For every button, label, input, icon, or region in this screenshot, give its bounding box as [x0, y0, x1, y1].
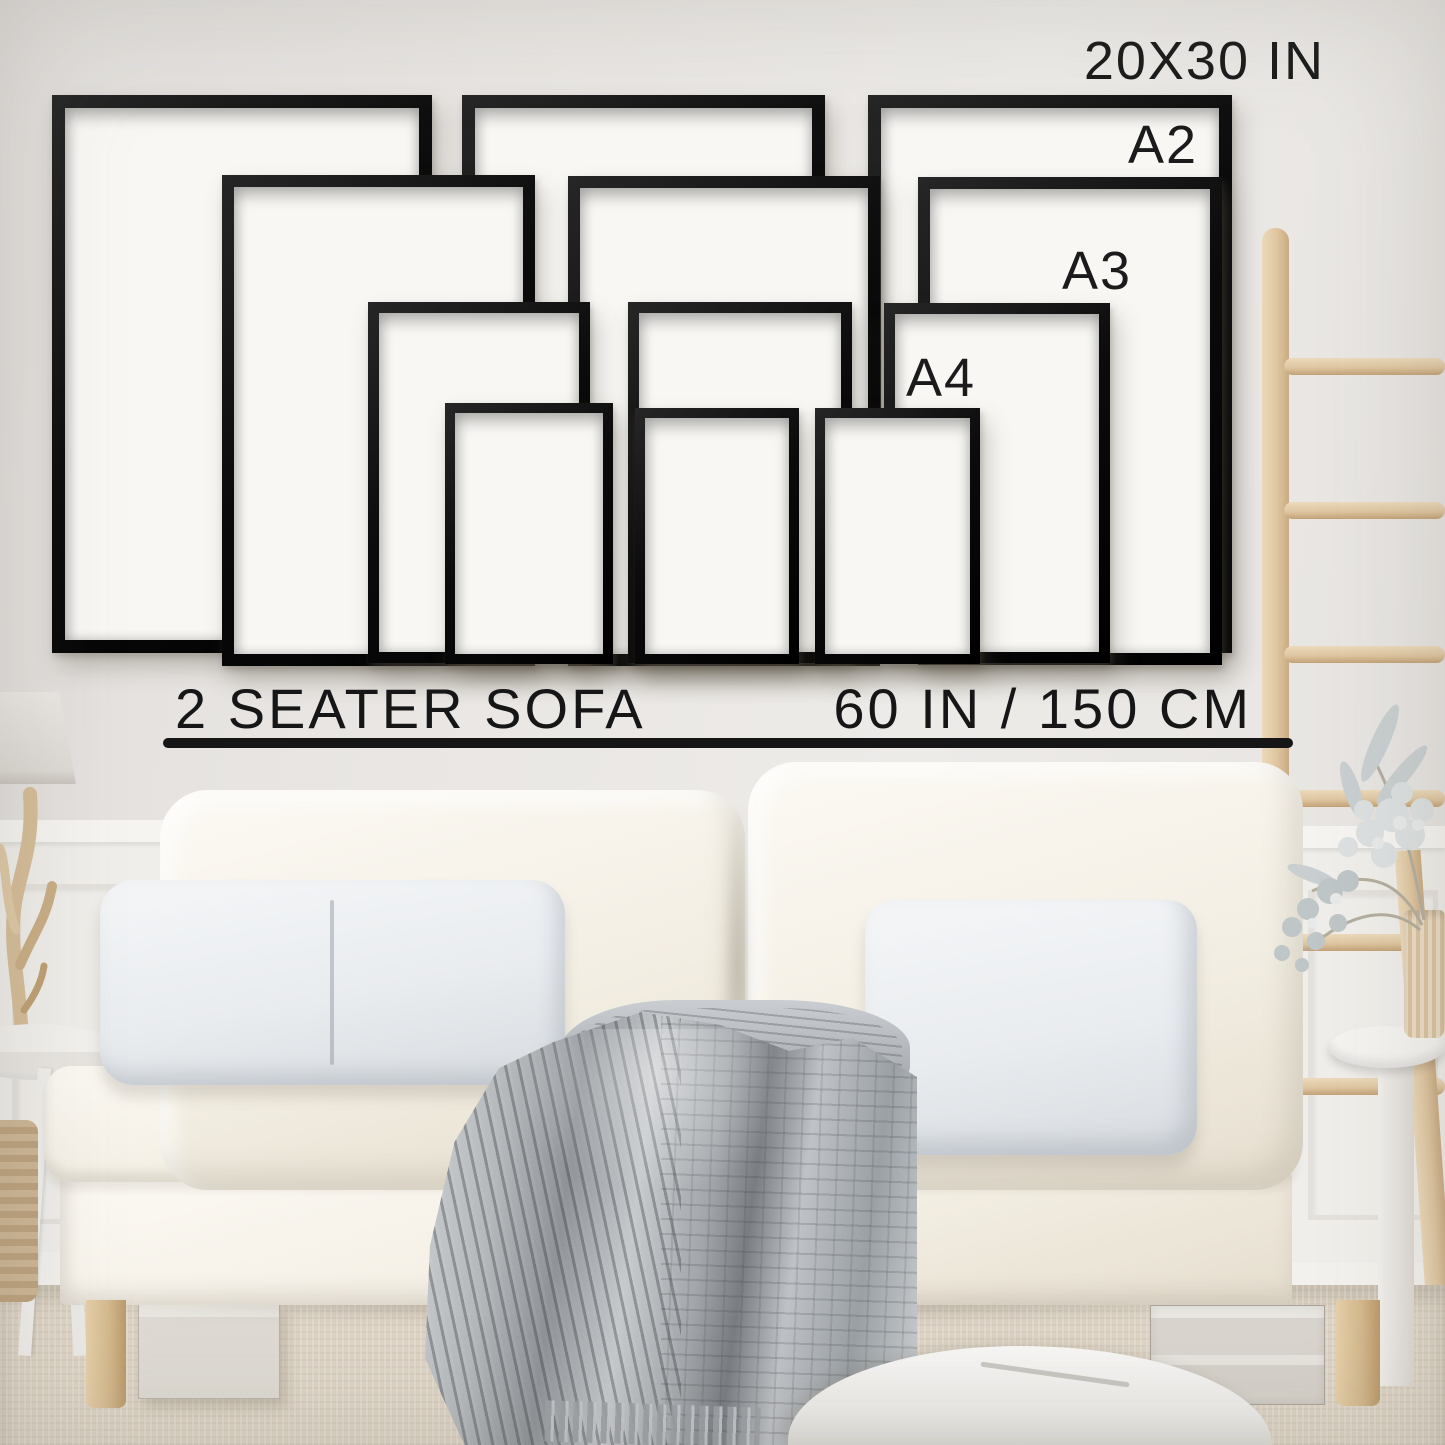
- sofa-width-label: 60 IN / 150 CM: [833, 676, 1252, 741]
- dried-plant: [1252, 695, 1445, 1025]
- blanket-fringe: [544, 1400, 760, 1445]
- frame-mat: [825, 418, 970, 654]
- measure-underline: [163, 738, 1293, 748]
- sofa-leg-right: [1336, 1300, 1380, 1406]
- ladder-rung-1: [1284, 358, 1445, 375]
- driftwood-decor: [0, 780, 85, 1050]
- sofa-type-label: 2 SEATER SOFA: [175, 676, 646, 741]
- picture-frame-a4-left: [445, 403, 613, 664]
- size-label-a2: A2: [1128, 114, 1198, 176]
- size-label-a3: A3: [1062, 240, 1132, 302]
- size-label-a4: A4: [906, 347, 976, 409]
- picture-frame-a4-right: [815, 408, 980, 664]
- side-table-right-pedestal: [1378, 1056, 1414, 1386]
- ladder-rung-3: [1284, 646, 1445, 663]
- jute-basket: [0, 1120, 38, 1302]
- frame-mat: [645, 418, 789, 654]
- ladder-rung-2: [1284, 502, 1445, 519]
- size-label-20x30: 20X30 IN: [1084, 30, 1325, 92]
- front-pillow-left-seam: [330, 900, 334, 1065]
- blanket-highlight: [523, 1029, 818, 1202]
- lamp-shade: [0, 692, 76, 784]
- frame-mat: [455, 413, 603, 654]
- sofa-leg-left: [86, 1300, 126, 1408]
- picture-frame-a4-middle: [635, 408, 799, 664]
- size-guide-image: 20X30 IN A2 A3 A4 2 SEATER SOFA 60 IN / …: [0, 0, 1445, 1445]
